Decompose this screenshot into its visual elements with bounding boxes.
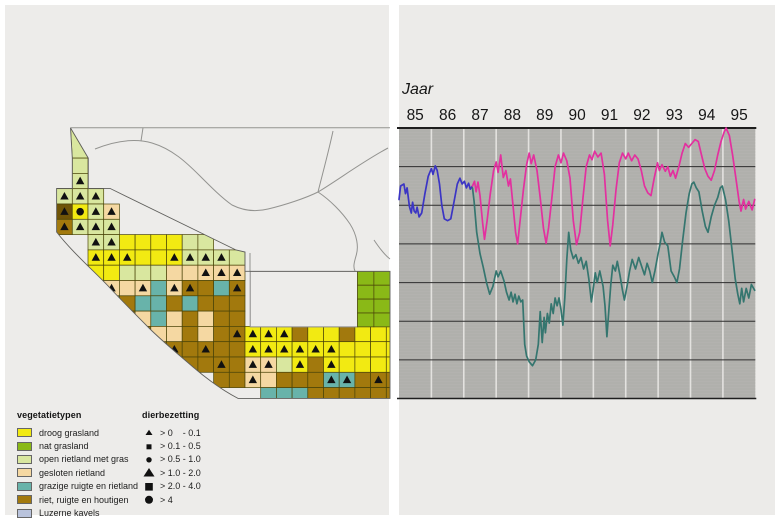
- legend-symbol: [142, 454, 156, 465]
- map-cell: [167, 265, 183, 280]
- map-cell: [151, 265, 167, 280]
- triangle-large-icon: [143, 467, 155, 478]
- year-tick-label: 91: [601, 107, 618, 124]
- map-cell: [339, 342, 355, 357]
- map-cell: [88, 265, 104, 280]
- map-cell: [151, 326, 167, 341]
- time-series-chart: 8586878889909192939495: [397, 107, 756, 399]
- map-cell: [151, 342, 167, 357]
- map-cell: [214, 281, 230, 296]
- map-enclosure-hole: [250, 271, 357, 327]
- map-cell: [339, 388, 355, 403]
- map-cell: [182, 342, 198, 357]
- legend-symbol: [142, 441, 156, 452]
- map-cell: [135, 311, 151, 326]
- map-cell: [324, 326, 340, 341]
- map-cell: [292, 372, 308, 387]
- year-tick-label: 90: [569, 107, 587, 124]
- map-cell: [182, 326, 198, 341]
- vegetation-legend-items: droog graslandnat graslandopen rietland …: [17, 426, 139, 520]
- map-cell: [214, 311, 230, 326]
- year-tick-label: 92: [633, 107, 650, 124]
- map-cell: [119, 296, 135, 311]
- map-cell: [229, 357, 245, 372]
- map-cell: [135, 235, 151, 250]
- square-large-icon: [143, 481, 155, 492]
- map-cell: [371, 357, 387, 372]
- legend-item: > 0 - 0.1: [142, 426, 252, 439]
- map-cell: [374, 299, 390, 313]
- map-cell: [374, 271, 390, 285]
- square-small-icon: [143, 441, 155, 452]
- legend-item-label: > 1.0 - 2.0: [160, 468, 201, 478]
- region-boundary-line: [141, 128, 143, 141]
- map-cell: [229, 342, 245, 357]
- year-tick-label: 87: [471, 107, 488, 124]
- legend-item-label: > 0.1 - 0.5: [160, 441, 201, 451]
- map-cell: [198, 357, 214, 372]
- map-cell: [324, 388, 340, 403]
- legend-item: grazige ruigte en rietland: [17, 480, 139, 493]
- map-cell: [151, 250, 167, 265]
- map-cell: [229, 250, 245, 265]
- legend-swatch: [17, 495, 32, 504]
- legend-item-label: gesloten rietland: [39, 468, 105, 478]
- map-cell: [119, 281, 135, 296]
- circle-large-icon: [76, 208, 84, 216]
- map-cell: [355, 342, 371, 357]
- legend-item: > 0.5 - 1.0: [142, 453, 252, 466]
- map-cell: [276, 388, 292, 403]
- map-cell: [355, 372, 371, 387]
- map-cell: [276, 357, 292, 372]
- map-cell: [229, 296, 245, 311]
- region-boundary-line: [318, 148, 388, 192]
- map-cell: [135, 326, 151, 341]
- region-boundary-line: [318, 131, 333, 192]
- triangle-icon: [139, 330, 147, 338]
- map-cell: [198, 281, 214, 296]
- map-cell: [308, 372, 324, 387]
- map-cell: [198, 235, 214, 250]
- map-cell: [104, 296, 120, 311]
- legend-item-label: riet, ruigte en houtigen: [39, 495, 129, 505]
- map-cell: [355, 326, 371, 341]
- region-boundary-line: [318, 192, 357, 271]
- chart-title: Jaar: [402, 81, 433, 99]
- map-cell: [355, 357, 371, 372]
- map-cell: [119, 265, 135, 280]
- map-cell: [214, 326, 230, 341]
- map-cell: [355, 388, 371, 403]
- circle-small-icon: [143, 454, 155, 465]
- map-cell: [182, 235, 198, 250]
- legend-item: > 1.0 - 2.0: [142, 466, 252, 479]
- year-tick-label: 93: [666, 107, 683, 124]
- legend-item-label: > 4: [160, 495, 173, 505]
- map-cell: [182, 265, 198, 280]
- map-cell: [167, 311, 183, 326]
- map-cell: [135, 265, 151, 280]
- map-cell: [229, 311, 245, 326]
- triangle-icon: [123, 314, 131, 322]
- legend-swatch: [17, 482, 32, 491]
- map-cell: [214, 296, 230, 311]
- map-cell: [358, 299, 374, 313]
- legend-item: droog grasland: [17, 426, 139, 439]
- legend-swatch: [17, 468, 32, 477]
- triangle-small-icon: [143, 427, 155, 438]
- map-cell: [261, 388, 277, 403]
- legend-item-label: droog grasland: [39, 428, 99, 438]
- map-cell: [371, 342, 387, 357]
- map-cell: [308, 326, 324, 341]
- year-tick-label: 94: [698, 107, 716, 124]
- map-cell: [308, 388, 324, 403]
- circle-large-icon: [143, 494, 155, 505]
- vegetation-legend-title: vegetatietypen: [17, 410, 139, 420]
- map-cell: [104, 265, 120, 280]
- map-cell: [308, 357, 324, 372]
- legend-item-label: > 0.5 - 1.0: [160, 454, 201, 464]
- map-cell: [135, 296, 151, 311]
- legend-item-label: > 2.0 - 4.0: [160, 481, 201, 491]
- legend-swatch: [17, 428, 32, 437]
- year-tick-label: 88: [504, 107, 521, 124]
- vegetation-legend: vegetatietypen droog graslandnat graslan…: [17, 410, 139, 520]
- map-cell: [339, 357, 355, 372]
- region-boundary-line: [95, 141, 318, 211]
- legend-item: riet, ruigte en houtigen: [17, 493, 139, 506]
- map-grid-cells: [57, 128, 402, 403]
- legend-item-label: nat grasland: [39, 441, 89, 451]
- map-cell: [182, 311, 198, 326]
- map-cell: [151, 281, 167, 296]
- map-cell: [72, 158, 88, 173]
- legend-item: open rietland met gras: [17, 453, 139, 466]
- map-cell: [198, 326, 214, 341]
- legend-swatch: [17, 455, 32, 464]
- map-cell: [167, 296, 183, 311]
- map-cell: [151, 235, 167, 250]
- density-legend-items: > 0 - 0.1> 0.1 - 0.5> 0.5 - 1.0> 1.0 - 2…: [142, 426, 252, 506]
- triangle-icon: [107, 299, 115, 307]
- map-cell: [292, 388, 308, 403]
- legend-item: gesloten rietland: [17, 466, 139, 479]
- region-boundary-line: [374, 240, 390, 259]
- map-cell: [167, 235, 183, 250]
- year-tick-label: 86: [439, 107, 456, 124]
- legend-swatch: [17, 509, 32, 518]
- year-tick-label: 85: [407, 107, 424, 124]
- legend-item-label: grazige ruigte en rietland: [39, 481, 138, 491]
- map-cell: [198, 311, 214, 326]
- legend-item: Luzerne kavels: [17, 506, 139, 519]
- legend-swatch: [17, 442, 32, 451]
- map-cell: [261, 372, 277, 387]
- map-cell: [151, 311, 167, 326]
- map-cell: [214, 342, 230, 357]
- legend-item: > 4: [142, 493, 252, 506]
- map-cell: [371, 388, 387, 403]
- map-cell: [358, 285, 374, 299]
- legend-item: > 2.0 - 4.0: [142, 480, 252, 493]
- map-cell: [339, 326, 355, 341]
- map-cell: [374, 313, 390, 327]
- map-cell: [167, 326, 183, 341]
- map-cell: [358, 313, 374, 327]
- map-cell: [371, 326, 387, 341]
- map-cell: [276, 372, 292, 387]
- legend-item-label: > 0 - 0.1: [160, 428, 201, 438]
- map-cell: [292, 326, 308, 341]
- year-tick-label: 95: [730, 107, 747, 124]
- map-cell: [374, 285, 390, 299]
- legend-symbol: [142, 481, 156, 492]
- map-cell: [135, 250, 151, 265]
- density-legend: dierbezetting > 0 - 0.1> 0.1 - 0.5> 0.5 …: [142, 410, 252, 506]
- legend-symbol: [142, 494, 156, 505]
- legend-symbol: [142, 427, 156, 438]
- map-cell: [198, 296, 214, 311]
- legend-symbol: [142, 467, 156, 478]
- legend-item: > 0.1 - 0.5: [142, 439, 252, 452]
- map-cell: [229, 372, 245, 387]
- map-cell: [119, 235, 135, 250]
- map-cell: [119, 311, 135, 326]
- map-cell: [358, 271, 374, 285]
- year-tick-label: 89: [536, 107, 553, 124]
- density-legend-title: dierbezetting: [142, 410, 252, 420]
- figure-canvas: 8586878889909192939495 Jaar vegetatietyp…: [0, 0, 780, 520]
- map-cell: [151, 296, 167, 311]
- legend-item: nat grasland: [17, 439, 139, 452]
- map-cell: [182, 296, 198, 311]
- legend-item-label: Luzerne kavels: [39, 508, 100, 518]
- legend-item-label: open rietland met gras: [39, 454, 129, 464]
- vegetation-map: [57, 128, 402, 403]
